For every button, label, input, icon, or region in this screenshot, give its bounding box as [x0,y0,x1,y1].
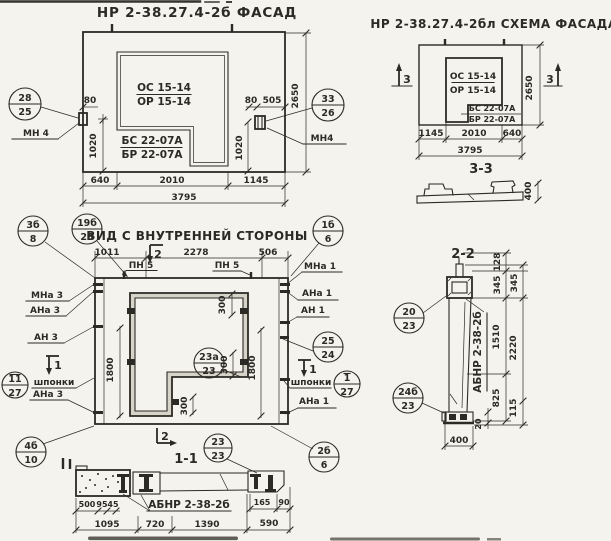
schema-dim-3795: 3795 [457,146,482,156]
callout-num: 33 [321,94,334,105]
svg-text:1095: 1095 [94,520,119,530]
facade-dim-3795: 3795 [171,193,196,203]
inner-title: ВИД С ВНУТРЕННЕЙ СТОРОНЫ [86,228,307,243]
section-2-2-title: 2-2 [451,247,475,262]
svg-text:2: 2 [161,430,169,443]
svg-text:3: 3 [403,73,411,86]
inner-dim-506: 506 [259,248,278,258]
svg-text:1390: 1390 [194,520,219,530]
svg-text:11: 11 [8,374,21,385]
svg-text:4б: 4б [24,441,38,452]
svg-text:300: 300 [180,397,190,416]
svg-text:2650: 2650 [291,83,301,108]
svg-text:МНа 1: МНа 1 [304,262,336,272]
schema-sill-mark-line2: БР 22-07А [469,115,516,124]
inner-dim-2278: 2278 [183,248,208,258]
svg-text:2: 2 [154,248,162,261]
svg-text:345: 345 [510,274,520,293]
svg-text:20: 20 [402,307,416,318]
schema-sill-mark-line1: БС 22-07А [469,104,516,113]
svg-text:24б: 24б [398,387,418,398]
facade-opening-mark-line1: ОС 15-14 [137,82,191,94]
facade-opening-mark-line2: ОР 15-14 [137,96,191,108]
svg-text:АН 1: АН 1 [301,306,325,316]
svg-text:590: 590 [260,519,279,529]
svg-text:АН 3: АН 3 [34,333,58,343]
svg-text:1: 1 [54,359,62,372]
callout-1-27: 1 27 [334,371,360,398]
facade-title: НР 2-38.27.4-2б ФАСАД [97,5,297,21]
svg-text:1: 1 [309,363,317,376]
svg-text:23: 23 [401,401,414,412]
svg-text:6: 6 [325,234,332,245]
svg-text:ПН 5: ПН 5 [215,261,239,271]
svg-text:АБНР 2-38-2б: АБНР 2-38-2б [148,499,230,511]
schema-dim-640: 640 [503,129,522,139]
svg-text:МН 4: МН 4 [23,129,49,139]
facade-dim-2010: 2010 [159,176,184,186]
svg-text:165: 165 [254,498,271,507]
svg-text:АБНР 2-38-2б: АБНР 2-38-2б [472,311,484,393]
inner-dim-1011: 1011 [94,248,119,258]
facade-dim-505: 505 [263,96,282,106]
inner-label-shponki-right: шпонки [284,378,331,388]
section-3-3-title: 3-3 [469,162,493,177]
svg-text:МНа 3: МНа 3 [31,291,63,301]
svg-text:23: 23 [211,451,224,462]
svg-text:1510: 1510 [492,324,502,349]
svg-text:1800: 1800 [106,357,116,382]
svg-text:300: 300 [218,296,228,315]
svg-text:400: 400 [450,436,469,446]
svg-text:10: 10 [24,455,38,466]
svg-text:23а: 23а [199,352,219,363]
svg-text:АНа 1: АНа 1 [299,397,329,407]
svg-text:345: 345 [493,276,503,295]
svg-text:27: 27 [8,388,21,399]
svg-text:1: 1 [344,373,351,384]
facade-sill-mark-line1: БС 22-07А [121,135,183,147]
svg-text:24: 24 [321,350,335,361]
inner-cut-2-top: 2 [147,245,163,263]
svg-text:400: 400 [524,182,534,201]
schema-opening-mark-line1: ОС 15-14 [450,72,496,82]
callout-11-27: 11 27 [2,372,28,399]
callout-sheet: 26 [321,108,335,119]
svg-text:3б: 3б [26,220,40,231]
svg-text:АНа 1: АНа 1 [302,289,332,299]
svg-text:1020: 1020 [235,135,245,160]
svg-text:825: 825 [492,389,502,408]
svg-text:АНа 3: АНа 3 [30,306,60,316]
svg-text:1б: 1б [321,220,335,231]
svg-text:8: 8 [30,234,37,245]
svg-text:2650: 2650 [525,75,535,100]
svg-text:720: 720 [146,520,165,530]
svg-text:ПН 5: ПН 5 [129,261,153,271]
svg-text:МН4: МН4 [311,134,334,144]
schema-dim-1145: 1145 [418,129,443,139]
svg-text:19б: 19б [77,218,97,229]
svg-text:2б: 2б [317,446,331,457]
svg-text:шпонки: шпонки [291,378,332,388]
schema-opening-mark-line2: ОР 15-14 [450,86,496,96]
schema-dim-2010: 2010 [461,129,486,139]
svg-text:95: 95 [96,500,108,509]
svg-text:3: 3 [546,73,554,86]
svg-text:6: 6 [321,460,328,471]
svg-text:АНа 3: АНа 3 [33,390,63,400]
svg-text:45: 45 [107,500,119,509]
facade-sill-mark-line2: БР 22-07А [121,149,183,161]
schema-title: НР 2-38.27.4-2бл СХЕМА ФАСАДА [370,17,611,31]
svg-text:28: 28 [80,232,94,243]
callout-num: 28 [18,93,32,104]
svg-text:500: 500 [79,500,96,509]
svg-text:115: 115 [509,399,519,418]
svg-text:1800: 1800 [248,355,258,380]
svg-text:25: 25 [321,336,334,347]
svg-text:23: 23 [402,321,415,332]
svg-text:23: 23 [202,366,215,377]
svg-text:128: 128 [493,253,503,272]
svg-text:шпонки: шпонки [34,378,75,388]
facade-dim-1145: 1145 [243,176,268,186]
svg-text:23: 23 [211,437,224,448]
facade-dim-640: 640 [91,176,110,186]
svg-text:20: 20 [474,418,483,430]
svg-text:1020: 1020 [89,133,99,158]
drawing-canvas: НР 2-38.27.4-2б ФАСАД ОС 15-14 ОР 15-14 … [0,0,611,541]
svg-text:2220: 2220 [509,335,519,360]
section-1-1-title: 1-1 [174,452,198,467]
callout-sheet: 25 [18,107,31,118]
svg-text:27: 27 [340,387,353,398]
